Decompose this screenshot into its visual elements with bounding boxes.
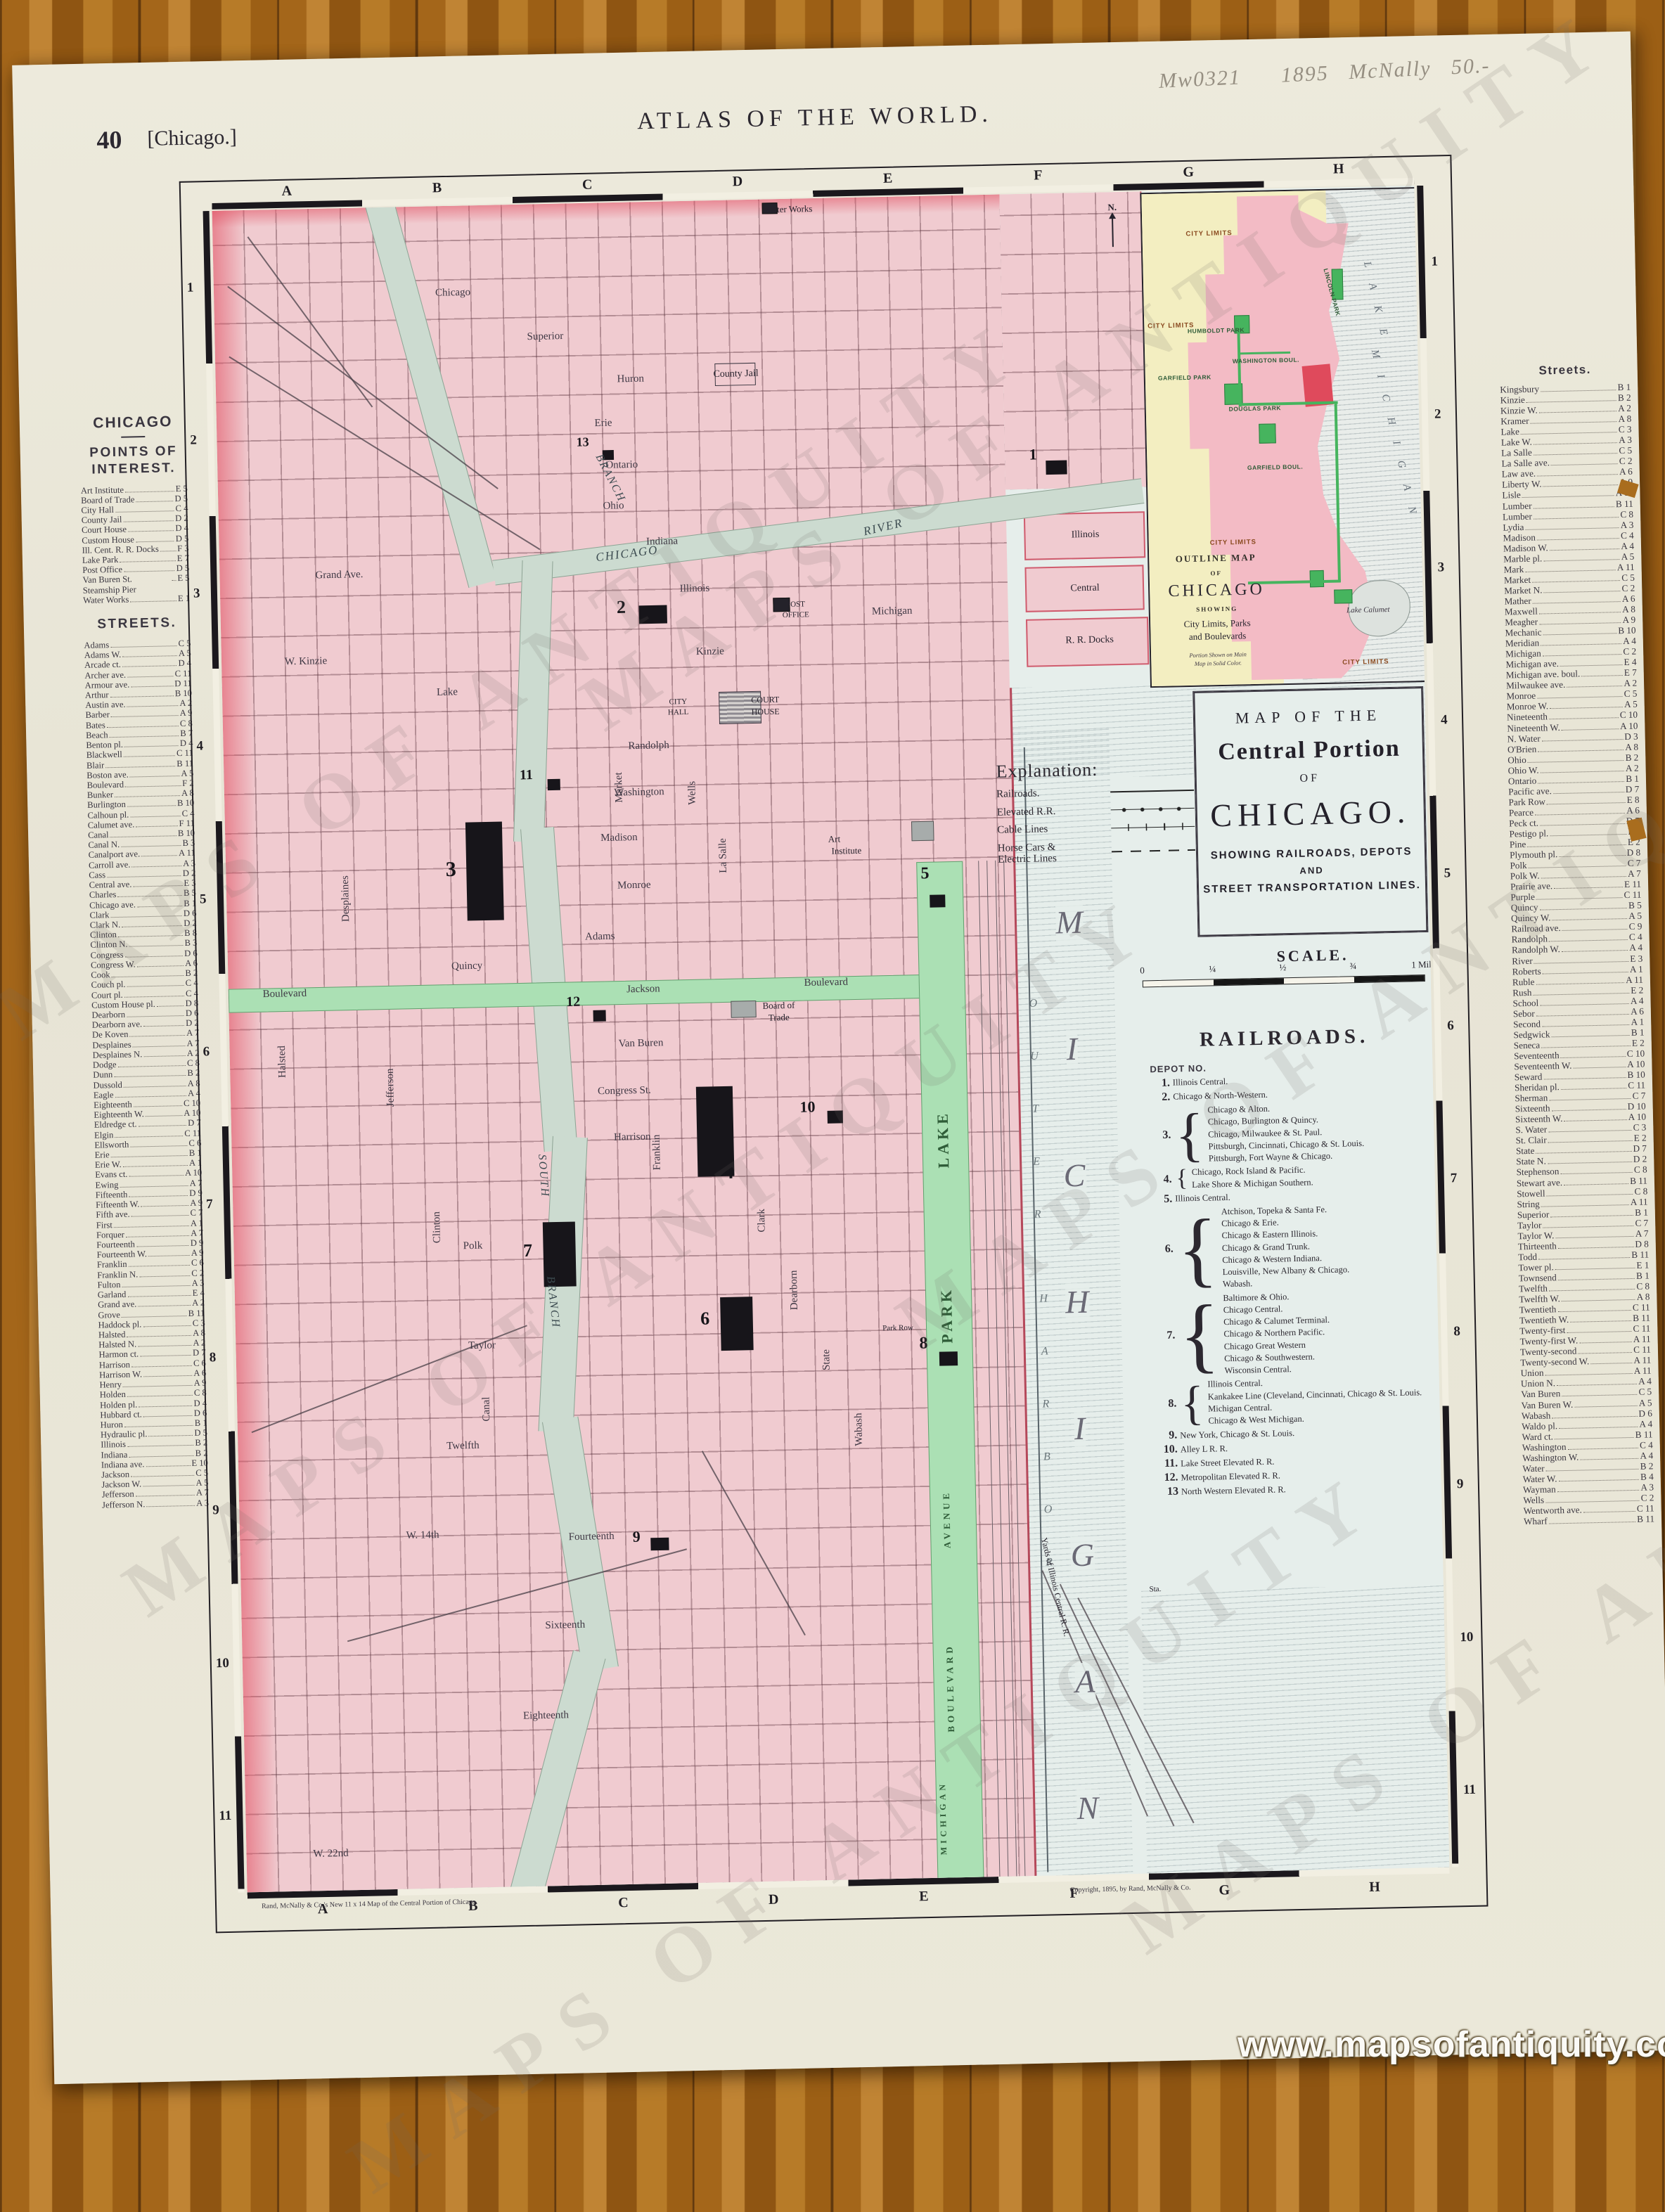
streets-index-list-right: KingsburyB 1KinzieB 2Kinzie W.A 2KramerA…: [1500, 382, 1654, 1527]
railroad-depot-number: 9.: [1145, 1429, 1177, 1443]
depot-number: 3: [445, 858, 456, 882]
grid-letter: A: [281, 184, 292, 200]
grid-letter: G: [1183, 165, 1194, 181]
points-of-interest-list: Art InstituteE 5Board of TradeD 5City Ha…: [81, 483, 191, 605]
grid-reference: B 10: [1627, 1069, 1645, 1081]
map-label: R: [1034, 1209, 1041, 1221]
dotted-leader: [1580, 1458, 1638, 1460]
street-name: Boston ave.: [86, 769, 129, 780]
dotted-leader: [1548, 1162, 1632, 1164]
legend-item-label: Railroads.: [996, 786, 1107, 800]
grid-reference: A 7: [1628, 868, 1641, 879]
street-name: Congress W.: [91, 959, 136, 970]
dotted-leader: [1561, 1056, 1626, 1058]
scale-tick-label: ½: [1279, 962, 1286, 973]
grid-reference: A 6: [1626, 804, 1640, 815]
dotted-leader: [143, 1325, 191, 1327]
lake-waves: [1141, 1585, 1449, 1874]
grid-reference: B 5: [1628, 900, 1642, 911]
street-name: Twenty-first W.: [1519, 1335, 1578, 1347]
grid-reference: C 8: [1634, 1185, 1647, 1196]
railroad-names: Alley L R. R.: [1181, 1443, 1228, 1456]
map-label: Boulevard: [263, 988, 307, 1001]
grid-reference: E 3: [1630, 953, 1642, 963]
map-label: Fourteenth: [569, 1531, 615, 1543]
dotted-leader: [1550, 548, 1620, 551]
street-name: Desplaines N.: [93, 1049, 143, 1060]
grid-reference: E 4: [1624, 657, 1636, 667]
dotted-leader: [1526, 527, 1619, 530]
street-name: Todd: [1518, 1252, 1537, 1263]
dotted-leader: [1542, 739, 1624, 741]
dotted-leader: [112, 975, 184, 977]
street-name: Henry: [99, 1380, 122, 1390]
street-name: Mechanic: [1505, 627, 1541, 638]
railroad-depot-number: 12.: [1145, 1472, 1178, 1485]
inset-label: Portion Shown on Main: [1189, 650, 1247, 659]
dotted-leader: [130, 600, 176, 602]
grid-reference: E 2: [1634, 1133, 1647, 1143]
map-label: Illinois: [1072, 529, 1100, 541]
grid-reference: C 8: [1634, 1164, 1647, 1175]
map-label: Halsted: [276, 1046, 289, 1078]
street-name: Dunn: [93, 1069, 112, 1080]
dotted-leader: [1536, 982, 1625, 985]
street-name: Dearborn: [91, 1010, 125, 1020]
inset-label: and Boulevards: [1189, 630, 1247, 643]
legend-item: Elevated R.R.: [997, 802, 1229, 818]
dotted-leader: [146, 1115, 182, 1117]
grid-reference: A 8: [1622, 604, 1635, 615]
map-label: HOUSE: [752, 707, 780, 718]
map-label: Erie: [594, 418, 612, 430]
grid-letter: C: [582, 177, 593, 193]
street-name: Arcade ct.: [84, 660, 121, 670]
dotted-leader: [160, 551, 176, 551]
dotted-leader: [124, 1085, 186, 1087]
depot-marker: [465, 821, 504, 920]
grid-reference: A 8: [1625, 741, 1638, 752]
street-name: Desplaines: [92, 1039, 131, 1050]
grid-reference: E 7: [1624, 667, 1637, 678]
grid-letter: E: [919, 1889, 929, 1905]
dotted-leader: [124, 570, 175, 572]
grid-reference: C 2: [1623, 646, 1636, 657]
street-name: O'Brien: [1507, 743, 1537, 754]
street-name: Dearborn ave.: [92, 1019, 143, 1030]
street-name: Michigan: [1505, 648, 1541, 660]
street-name: Huron: [101, 1420, 123, 1430]
railroad-depot-number: 13: [1146, 1486, 1178, 1499]
depot-marker: [593, 1010, 605, 1021]
dotted-leader: [1537, 538, 1619, 540]
dotted-leader: [1536, 1014, 1630, 1017]
street-name: City Hall: [81, 505, 114, 515]
map-label: OFFICE: [783, 610, 809, 619]
railroad-depot-number: 5.: [1140, 1192, 1172, 1206]
grid-reference: E 2: [1632, 1037, 1645, 1048]
grid-reference: A 10: [1628, 1112, 1647, 1123]
street-name: Hydraulic pl.: [101, 1429, 148, 1440]
title-line: AND: [1197, 863, 1426, 878]
grid-reference: D 8: [1627, 847, 1641, 858]
dotted-leader: [1561, 1088, 1626, 1090]
legend-item-label: Horse Cars &Electric Lines: [998, 840, 1110, 866]
dotted-leader: [120, 560, 175, 562]
street-name: Central ave.: [89, 880, 131, 890]
railroad-depot-number: 4.: [1140, 1173, 1172, 1186]
grid-reference: A 8: [1637, 1291, 1650, 1301]
street-name: Franklin: [97, 1259, 127, 1270]
grid-reference: A 11: [1631, 1196, 1648, 1207]
grid-reference: C 11: [1633, 1344, 1651, 1356]
legend-title: Explanation:: [996, 757, 1228, 783]
street-name: Water W.: [1523, 1473, 1557, 1484]
dotted-leader: [140, 1355, 191, 1357]
dotted-leader: [1554, 887, 1623, 889]
street-name: Van Buren W.: [1521, 1398, 1573, 1410]
street-name: St. Clair: [1516, 1135, 1547, 1146]
dotted-leader: [137, 906, 182, 907]
dotted-leader: [157, 1005, 184, 1007]
map-label: A: [1075, 1663, 1096, 1701]
street-name: Hubbard ct.: [100, 1409, 142, 1420]
street-name: Clinton N.: [90, 939, 127, 950]
street-name: Michigan ave.: [1505, 658, 1559, 670]
street-name: Lake: [1500, 426, 1519, 437]
dotted-leader: [131, 1475, 194, 1477]
grid-reference: C 7: [1628, 858, 1641, 868]
dotted-leader: [1558, 1247, 1634, 1249]
dotted-leader: [137, 965, 184, 967]
grid-reference: B 1: [1626, 773, 1639, 783]
railroad-names: Chicago & Alton.Chicago, Burlington & Qu…: [1207, 1101, 1364, 1165]
dotted-leader: [134, 885, 183, 887]
map-label: E: [1033, 1156, 1040, 1169]
grid-number: 7: [206, 1197, 213, 1213]
grid-reference: C 11: [1633, 1302, 1650, 1313]
dotted-leader: [138, 1305, 191, 1307]
dotted-leader: [1545, 1500, 1640, 1503]
street-name: Lydia: [1503, 522, 1524, 533]
dotted-leader: [1537, 696, 1623, 699]
grid-reference: B 11: [1635, 1429, 1653, 1440]
dotted-leader: [134, 1105, 182, 1107]
dotted-leader: [141, 856, 177, 857]
railroad-depot-number: 7.: [1143, 1329, 1175, 1342]
street-name: Sebor: [1513, 1008, 1535, 1020]
street-name: N. Water: [1507, 733, 1541, 744]
street-name: La Salle ave.: [1501, 458, 1550, 469]
dotted-leader: [125, 785, 181, 787]
dotted-leader: [115, 510, 174, 513]
dotted-leader: [126, 1235, 189, 1237]
street-name: Holden pl.: [100, 1399, 137, 1410]
map-label: I: [1066, 1030, 1078, 1067]
map-label: Boulevard: [804, 977, 848, 989]
grid-number: 2: [1434, 407, 1441, 423]
inset-label: CITY LIMITS: [1342, 658, 1389, 667]
street-name: Fulton: [97, 1280, 120, 1290]
dotted-leader: [1521, 432, 1617, 435]
street-name: Court pl.: [91, 989, 123, 1000]
street-name: Cass: [89, 870, 105, 880]
dotted-leader: [1559, 855, 1625, 857]
dotted-leader: [1590, 1363, 1632, 1364]
street-name: Wabash: [1522, 1410, 1551, 1421]
dotted-leader: [148, 1255, 190, 1256]
street-name: Board of Trade: [81, 494, 135, 506]
street-name: Lake W.: [1501, 437, 1532, 448]
street-name: Purple: [1510, 892, 1535, 903]
grid-number: 4: [196, 738, 203, 754]
street-name: Market N.: [1504, 584, 1543, 596]
map-content: 12345678910111213 ChicagoSuperiorHuronCo…: [212, 186, 1450, 1892]
dotted-leader: [127, 1015, 184, 1017]
street-name: Dodge: [93, 1060, 117, 1070]
grid-reference: C 10: [1627, 1048, 1645, 1059]
grid-letter: G: [1219, 1882, 1230, 1898]
map-label: G: [1070, 1536, 1095, 1574]
depot-number: 8: [919, 1334, 928, 1353]
railroad-names: Metropolitan Elevated R. R.: [1181, 1470, 1280, 1484]
map-label: Jefferson: [385, 1068, 397, 1107]
dotted-leader: [1542, 1024, 1629, 1027]
grid-reference: C 2: [1619, 456, 1633, 466]
map-label: Art: [828, 833, 841, 844]
street-name: Twenty-second: [1520, 1346, 1577, 1358]
map-label: CITY: [669, 697, 687, 707]
legend-item: Horse Cars &Electric Lines: [998, 837, 1230, 866]
street-name: Benton pl.: [86, 740, 123, 750]
map-label: Van Buren: [618, 1037, 663, 1050]
dotted-leader: [129, 1265, 190, 1267]
grid-number: 11: [219, 1808, 231, 1824]
railroads-panel: RAILROADS. DEPOT NO. 1.Illinois Central.…: [1136, 1024, 1441, 1500]
street-name: Marble pl.: [1503, 553, 1542, 564]
brace-icon: {: [1177, 1213, 1219, 1285]
street-name: Canal N.: [88, 840, 120, 850]
dotted-leader: [1552, 1109, 1626, 1111]
map-label: Taylor: [468, 1339, 496, 1352]
grid-reference: C 4: [1621, 529, 1634, 540]
dotted-leader: [1522, 496, 1614, 499]
street-name: Sixteenth: [1515, 1103, 1550, 1114]
dotted-leader: [123, 1385, 193, 1387]
dotted-leader: [122, 1285, 190, 1287]
inset-label: GARFIELD PARK: [1158, 373, 1211, 382]
grid-reference: C 11: [1624, 889, 1641, 901]
railroad-depot-number: 3.: [1138, 1129, 1171, 1143]
grid-reference: B 10: [1618, 625, 1636, 636]
dotted-leader: [133, 1046, 186, 1048]
dotted-leader: [114, 1225, 189, 1227]
scale-tick-label: ¼: [1209, 963, 1216, 975]
dotted-leader: [1534, 442, 1617, 444]
grid-number: 8: [210, 1350, 217, 1365]
map-label: Franklin: [651, 1134, 664, 1170]
street-name: Quincy W.: [1511, 913, 1551, 924]
street-name: Wharf: [1524, 1516, 1548, 1527]
dotted-leader: [1567, 1331, 1631, 1333]
grid-number: 11: [1463, 1782, 1476, 1798]
railroad-names: Baltimore & Ohio.Chicago Central.Chicago…: [1223, 1290, 1330, 1377]
grid-reference: A 6: [1619, 466, 1633, 477]
depot-number: 2: [617, 597, 626, 618]
poi-entry: Van Buren St. Steamship PierE 5: [82, 573, 190, 596]
dotted-leader: [1557, 1310, 1631, 1312]
street-name: Barber: [85, 710, 110, 721]
railroad-names: Atchison, Topeka & Santa Fe.Chicago & Er…: [1221, 1203, 1350, 1291]
street-name: Grand ave.: [98, 1299, 137, 1310]
street-name: Ruble: [1512, 976, 1535, 987]
grid-reference: B 2: [1618, 392, 1631, 403]
inset-park: [1259, 423, 1276, 443]
title-line: CHICAGO.: [1195, 792, 1425, 835]
dotted-leader: [1529, 866, 1626, 868]
title-line: OF: [1195, 770, 1425, 787]
building: [731, 1001, 756, 1018]
grid-reference: E 11: [1624, 879, 1641, 890]
street-name: Adams W.: [84, 650, 122, 660]
dotted-leader: [127, 676, 174, 677]
street-name: Adams: [84, 640, 109, 650]
street-name: Kramer: [1500, 416, 1529, 427]
dotted-leader: [131, 1215, 189, 1217]
street-name: Law ave.: [1502, 468, 1536, 480]
map-label: R. R. Docks: [1065, 634, 1114, 646]
map-label: MICHIGAN: [937, 1781, 949, 1856]
street-name: Michigan ave. boul.: [1506, 669, 1581, 681]
map-label: LAKE: [934, 1110, 953, 1169]
grid-letter: E: [883, 171, 893, 187]
street-name: Archer ave.: [84, 669, 126, 680]
dotted-leader: [1552, 1415, 1637, 1418]
dotted-leader: [143, 1415, 193, 1417]
grid-reference: D 2: [1633, 1154, 1647, 1164]
grid-letter: B: [432, 180, 442, 196]
dotted-leader: [139, 1125, 187, 1126]
dotted-leader: [1574, 1067, 1626, 1069]
grid-number: 5: [1444, 866, 1451, 881]
railroad-names: Illinois Central.: [1173, 1076, 1228, 1089]
pencil-annotation: Mw0321 1895 McNally 50.-: [1158, 54, 1491, 94]
street-index-entry: Jefferson N.A 3: [102, 1498, 209, 1510]
dotted-leader: [1562, 1299, 1635, 1301]
dotted-leader: [122, 1316, 187, 1318]
map-label: N: [1076, 1789, 1100, 1827]
street-name: Wayman: [1523, 1484, 1556, 1495]
map-label: H: [1039, 1292, 1048, 1305]
railroad-names: New York, Chicago & St. Louis.: [1180, 1427, 1294, 1442]
inset-label: SHOWING: [1196, 605, 1237, 613]
grid-reference: A 5: [1628, 911, 1642, 921]
street-name: Beach: [86, 730, 108, 740]
street-name: Bates: [86, 720, 105, 731]
street-name: Eighteenth: [94, 1100, 132, 1110]
map-label: Board of: [762, 1000, 795, 1012]
map-label: Institute: [831, 845, 861, 857]
dotted-leader: [1546, 1469, 1639, 1472]
grid-reference: D 7: [1633, 1143, 1647, 1154]
dotted-leader: [110, 835, 176, 837]
dotted-leader: [1570, 1320, 1631, 1323]
street-name: Art Institute: [81, 484, 124, 495]
dotted-leader: [127, 985, 184, 987]
dotted-leader: [123, 1165, 188, 1167]
grid-letter: C: [618, 1895, 629, 1911]
railroad-depot-number: 8.: [1144, 1397, 1176, 1410]
dotted-leader: [139, 1405, 192, 1407]
map-label: Huron: [617, 373, 644, 386]
dotted-leader: [1562, 929, 1628, 931]
street-name: Prairie ave.: [1510, 880, 1552, 892]
street-name: Ellsworth: [94, 1140, 129, 1150]
grid-reference: A 4: [1638, 1376, 1652, 1387]
brace-icon: {: [1181, 1383, 1204, 1424]
map-label: A: [1041, 1345, 1048, 1358]
dotted-leader: [1543, 972, 1628, 975]
map-label: Wells: [686, 781, 699, 805]
dotted-leader: [1549, 718, 1619, 720]
inset-label: HUMBOLDT PARK: [1188, 326, 1245, 335]
grid-reference: B 1: [1636, 1270, 1650, 1280]
dotted-leader: [127, 1295, 191, 1297]
grid-number: 2: [190, 433, 197, 449]
map-label: Congress St.: [598, 1085, 651, 1098]
map-label: W. 22nd: [313, 1848, 349, 1860]
dotted-leader: [1559, 1426, 1638, 1428]
grid-reference: C 8: [1636, 1280, 1650, 1291]
dotted-leader: [1555, 1268, 1635, 1270]
inset-label: City Limits, Parks: [1184, 617, 1251, 630]
street-name: Park Row: [1508, 796, 1545, 807]
street-name: Union N.: [1521, 1378, 1555, 1389]
map-label: Wabash: [853, 1413, 866, 1446]
dotted-leader: [129, 1176, 184, 1178]
street-name: Fifth ave.: [96, 1209, 130, 1220]
grid-reference: A 9: [1622, 615, 1635, 625]
street-name: Grove: [98, 1310, 120, 1320]
dotted-leader: [129, 945, 184, 947]
grid-reference: A 11: [1626, 974, 1643, 985]
dotted-leader: [172, 581, 176, 581]
dotted-leader: [131, 686, 173, 687]
dotted-leader: [118, 935, 183, 937]
dotted-leader: [1534, 517, 1619, 520]
dotted-leader: [1564, 1119, 1627, 1121]
dotted-leader: [1534, 453, 1618, 456]
street-name: Erie W.: [95, 1159, 122, 1170]
dotted-leader: [1538, 781, 1624, 784]
inset-label: Map in Solid Color.: [1195, 659, 1242, 667]
brace-icon: {: [1178, 1299, 1220, 1371]
dotted-leader: [1537, 475, 1618, 477]
street-name: Canal: [88, 830, 109, 840]
depot-marker: [1046, 461, 1067, 475]
street-name: Chicago ave.: [89, 899, 136, 911]
grid-reference: A 4: [1623, 636, 1636, 646]
dotted-leader: [1548, 1130, 1631, 1132]
railroad-names: North Western Elevated R. R.: [1181, 1484, 1286, 1498]
grid-letter: H: [1369, 1879, 1380, 1896]
compass: N.: [1107, 202, 1119, 247]
street-name: Water Works: [83, 594, 129, 605]
map-label: Harrison: [614, 1131, 651, 1144]
street-name: Ward ct.: [1522, 1431, 1553, 1442]
dotted-leader: [1552, 1035, 1630, 1037]
grid-number: 1: [187, 280, 194, 295]
